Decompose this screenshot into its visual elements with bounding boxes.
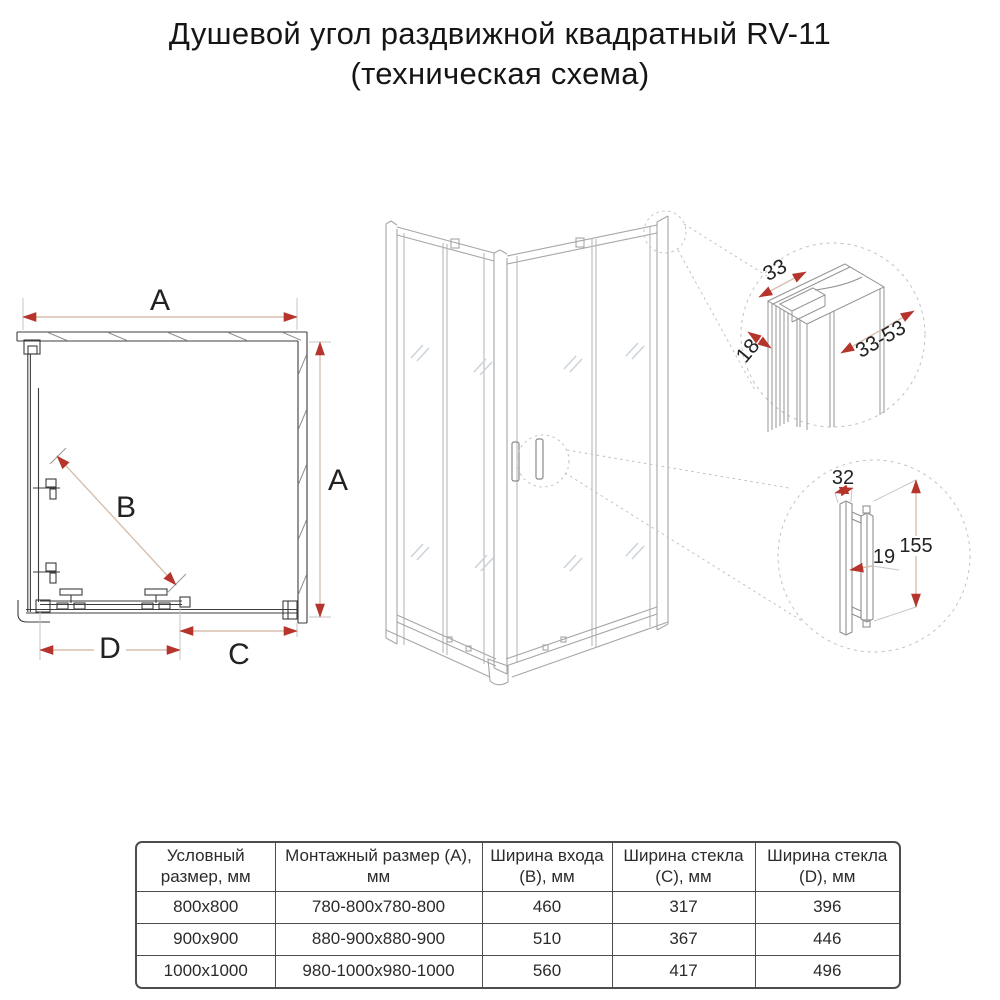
table-cell: 317 (612, 892, 755, 924)
iso-frame (386, 216, 668, 685)
profile-dim-33-label: 33 (759, 255, 790, 286)
dim-label-b: B (116, 491, 136, 524)
profile-dim-33-53: 33-53 (841, 311, 914, 363)
dim-label-a-right: A (328, 464, 348, 497)
handle-dim-32-label: 32 (832, 467, 854, 489)
dim-label-d: D (99, 632, 121, 665)
handle-dim-19: 19 (850, 546, 899, 570)
dim-a-top: A (23, 284, 297, 330)
size-table-wrapper: Условный размер, мм Монтажный размер (А)… (135, 841, 901, 989)
profile-dim-33-53-label: 33-53 (852, 316, 910, 363)
profile-detail: 33 18 33-53 (732, 243, 925, 432)
header-nominal-size: Условный размер, мм (137, 843, 275, 892)
table-cell: 417 (612, 956, 755, 988)
table-cell: 1000x1000 (137, 956, 275, 988)
plan-door-bottom (26, 448, 297, 619)
technical-scheme-page: Душевой угол раздвижной квадратный RV-11… (0, 0, 1000, 1000)
dim-label-a-top: A (150, 284, 170, 317)
size-table: Условный размер, мм Монтажный размер (А)… (137, 843, 899, 987)
handle-dim-19-label: 19 (873, 546, 895, 568)
table-cell: 560 (482, 956, 612, 988)
table-cell: 460 (482, 892, 612, 924)
table-header-row: Условный размер, мм Монтажный размер (А)… (137, 843, 899, 892)
profile-dim-18: 18 (732, 332, 771, 367)
header-mounting-size: Монтажный размер (А), мм (275, 843, 482, 892)
table-cell: 880-900x880-900 (275, 924, 482, 956)
handle-detail: 32 155 19 (778, 460, 970, 652)
dim-c: C (180, 623, 297, 671)
table-row: 900x900 880-900x880-900 510 367 446 (137, 924, 899, 956)
plan-wall-right (298, 332, 307, 623)
table-cell: 496 (755, 956, 899, 988)
table-cell: 980-1000x980-1000 (275, 956, 482, 988)
dim-label-c: C (228, 638, 250, 671)
table-cell: 367 (612, 924, 755, 956)
table-row: 800x800 780-800x780-800 460 317 396 (137, 892, 899, 924)
table-cell: 446 (755, 924, 899, 956)
profile-dim-33: 33 (759, 255, 806, 297)
table-cell: 900x900 (137, 924, 275, 956)
header-entry-width: Ширина входа (В), мм (482, 843, 612, 892)
table-cell: 800x800 (137, 892, 275, 924)
iso-view (386, 216, 668, 685)
plan-glass-left (18, 340, 60, 622)
table-cell: 396 (755, 892, 899, 924)
plan-wall-top (17, 332, 307, 341)
header-glass-c-width: Ширина стекла (С), мм (612, 843, 755, 892)
callout-leader-lines (517, 211, 802, 621)
plan-view: A A B D (17, 284, 348, 671)
handle-drawing (840, 501, 873, 635)
dim-b-diagonal: B (57, 456, 176, 585)
table-cell: 780-800x780-800 (275, 892, 482, 924)
handle-dim-32: 32 (832, 467, 854, 503)
diagram-svg: A A B D (0, 0, 1000, 840)
header-glass-d-width: Ширина стекла (D), мм (755, 843, 899, 892)
dim-d: D (40, 608, 180, 665)
dim-a-right: A (309, 342, 348, 617)
table-row: 1000x1000 980-1000x980-1000 560 417 496 (137, 956, 899, 988)
table-cell: 510 (482, 924, 612, 956)
handle-dim-155-label: 155 (899, 535, 932, 557)
